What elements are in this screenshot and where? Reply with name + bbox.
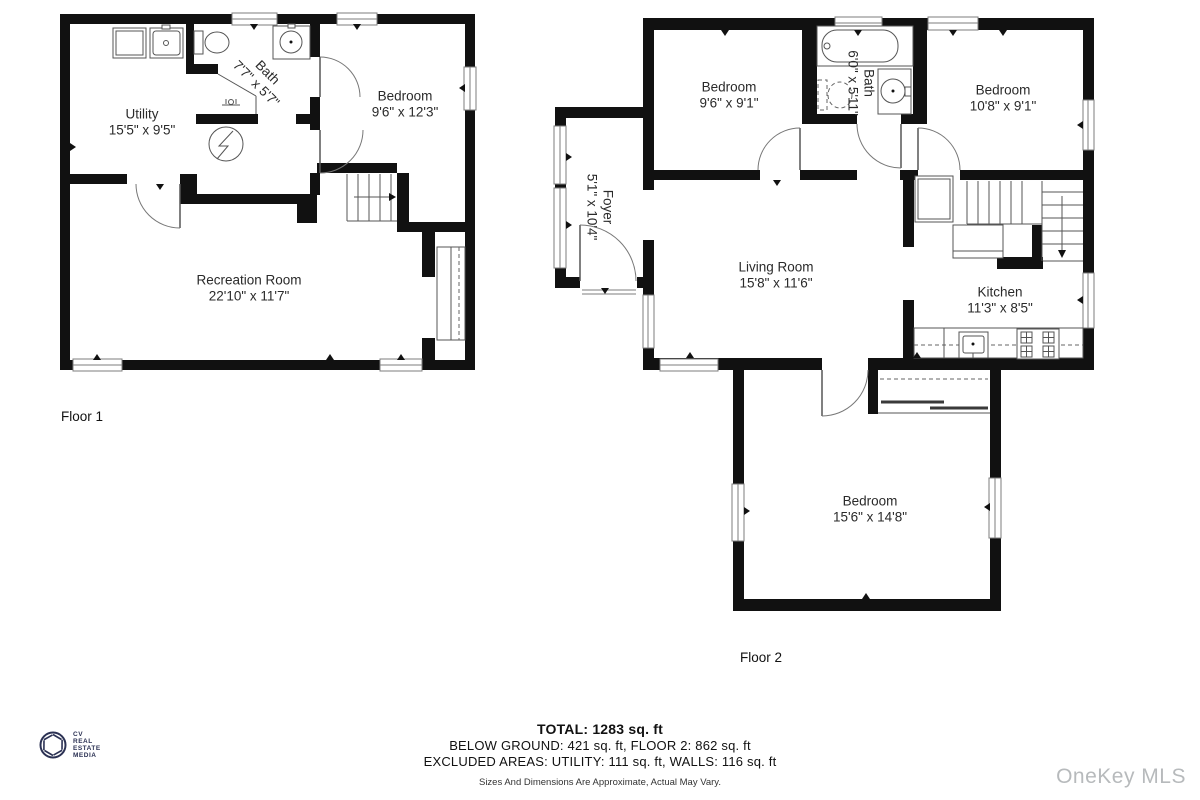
logo-line: CV — [73, 731, 101, 738]
disclaimer: Sizes And Dimensions Are Approximate, Ac… — [0, 777, 1200, 788]
floor2-label: Floor 2 — [740, 650, 782, 665]
window — [1083, 100, 1094, 150]
window — [989, 478, 1001, 538]
logo-line: ESTATE — [73, 745, 101, 752]
room-dims: 15'8" x 11'6" — [738, 275, 813, 291]
logo-line: REAL — [73, 738, 101, 745]
onekey-mls-watermark: OneKey MLS — [1056, 765, 1186, 789]
excluded-areas: EXCLUDED AREAS: UTILITY: 111 sq. ft, WAL… — [0, 754, 1200, 769]
bath-sink-icon — [273, 24, 310, 59]
room-label-living-room: Living Room 15'8" x 11'6" — [738, 260, 813, 291]
room-label-bath-floor2: Bath 6'0" x 5'11" — [846, 50, 877, 116]
cv-real-estate-media-logo: CV REAL ESTATE MEDIA — [38, 730, 101, 760]
room-label-recreation-room: Recreation Room 22'10" x 11'7" — [196, 273, 301, 304]
room-dims: 15'6" x 14'8" — [833, 509, 907, 525]
room-dims: 10'8" x 9'1" — [970, 98, 1037, 114]
room-label-bedroom-lower: Bedroom 15'6" x 14'8" — [833, 494, 907, 525]
area-breakdown: BELOW GROUND: 421 sq. ft, FLOOR 2: 862 s… — [0, 738, 1200, 753]
counter — [953, 225, 1003, 258]
room-dims: 5'1" x 10'4" — [585, 174, 601, 241]
toilet-icon — [194, 31, 229, 54]
window — [660, 359, 718, 371]
floor1-label: Floor 1 — [61, 409, 103, 424]
vanity-faucet-icon — [222, 99, 240, 105]
room-dims: 22'10" x 11'7" — [196, 288, 301, 304]
room-label-utility: Utility 15'5" x 9'5" — [109, 107, 176, 138]
window — [380, 359, 422, 371]
electric-panel-icon — [209, 127, 243, 161]
entry-threshold — [582, 290, 636, 294]
bath-sink-icon — [878, 69, 911, 114]
door-swing — [822, 370, 868, 416]
door-swing — [320, 57, 360, 97]
room-name: Bedroom — [833, 494, 907, 510]
stove-icon — [1017, 329, 1059, 359]
door-swing — [857, 124, 901, 168]
window — [73, 359, 122, 371]
utility-sink-icon — [150, 25, 183, 58]
window — [928, 17, 978, 30]
door-swing — [758, 128, 800, 170]
room-name: Bedroom — [970, 83, 1037, 99]
room-dims: 15'5" x 9'5" — [109, 122, 176, 138]
room-dims: 9'6" x 9'1" — [699, 95, 758, 111]
room-dims: 6'0" x 5'11" — [846, 50, 862, 116]
closet-floor1 — [437, 247, 465, 340]
stair-direction-arrow — [389, 193, 396, 201]
door-swing — [918, 128, 960, 170]
area-summary: TOTAL: 1283 sq. ft BELOW GROUND: 421 sq.… — [0, 721, 1200, 788]
fridge-icon — [915, 176, 953, 222]
room-dims: 11'3" x 8'5" — [967, 300, 1033, 316]
room-name: Recreation Room — [196, 273, 301, 289]
window — [464, 67, 476, 110]
stair-direction-arrow — [1058, 250, 1066, 258]
kitchen-sink-icon — [959, 332, 988, 358]
room-name: Foyer — [600, 174, 616, 241]
floor1-windows — [73, 13, 476, 371]
room-dims: 9'6" x 12'3" — [372, 104, 439, 120]
window — [732, 484, 744, 541]
floorplan-page: { "page": {"background": "#ffffff"}, "fl… — [0, 0, 1200, 800]
room-label-foyer: Foyer 5'1" x 10'4" — [585, 174, 616, 241]
window — [232, 13, 277, 25]
window — [554, 126, 566, 184]
window — [554, 188, 566, 268]
room-name: Bedroom — [699, 80, 758, 96]
room-name: Living Room — [738, 260, 813, 276]
room-label-bedroom-floor1: Bedroom 9'6" x 12'3" — [372, 89, 439, 120]
room-name: Kitchen — [967, 285, 1033, 301]
room-name: Bedroom — [372, 89, 439, 105]
camera-aperture-icon — [38, 730, 68, 760]
staircase-floor1 — [347, 174, 397, 221]
room-label-kitchen: Kitchen 11'3" x 8'5" — [967, 285, 1033, 316]
window — [643, 295, 654, 348]
floorplan-drawing — [0, 0, 1200, 800]
room-name: Bath — [861, 50, 877, 116]
total-area: TOTAL: 1283 sq. ft — [0, 721, 1200, 737]
room-name: Utility — [109, 107, 176, 123]
closet-floor2 — [878, 379, 990, 413]
room-label-bedroom-right: Bedroom 10'8" x 9'1" — [970, 83, 1037, 114]
logo-text: CV REAL ESTATE MEDIA — [73, 731, 101, 759]
washer-icon — [113, 28, 146, 58]
logo-line: MEDIA — [73, 752, 101, 759]
room-label-bedroom-left: Bedroom 9'6" x 9'1" — [699, 80, 758, 111]
door-swing — [136, 184, 180, 228]
window — [337, 13, 377, 25]
window — [1083, 273, 1094, 328]
